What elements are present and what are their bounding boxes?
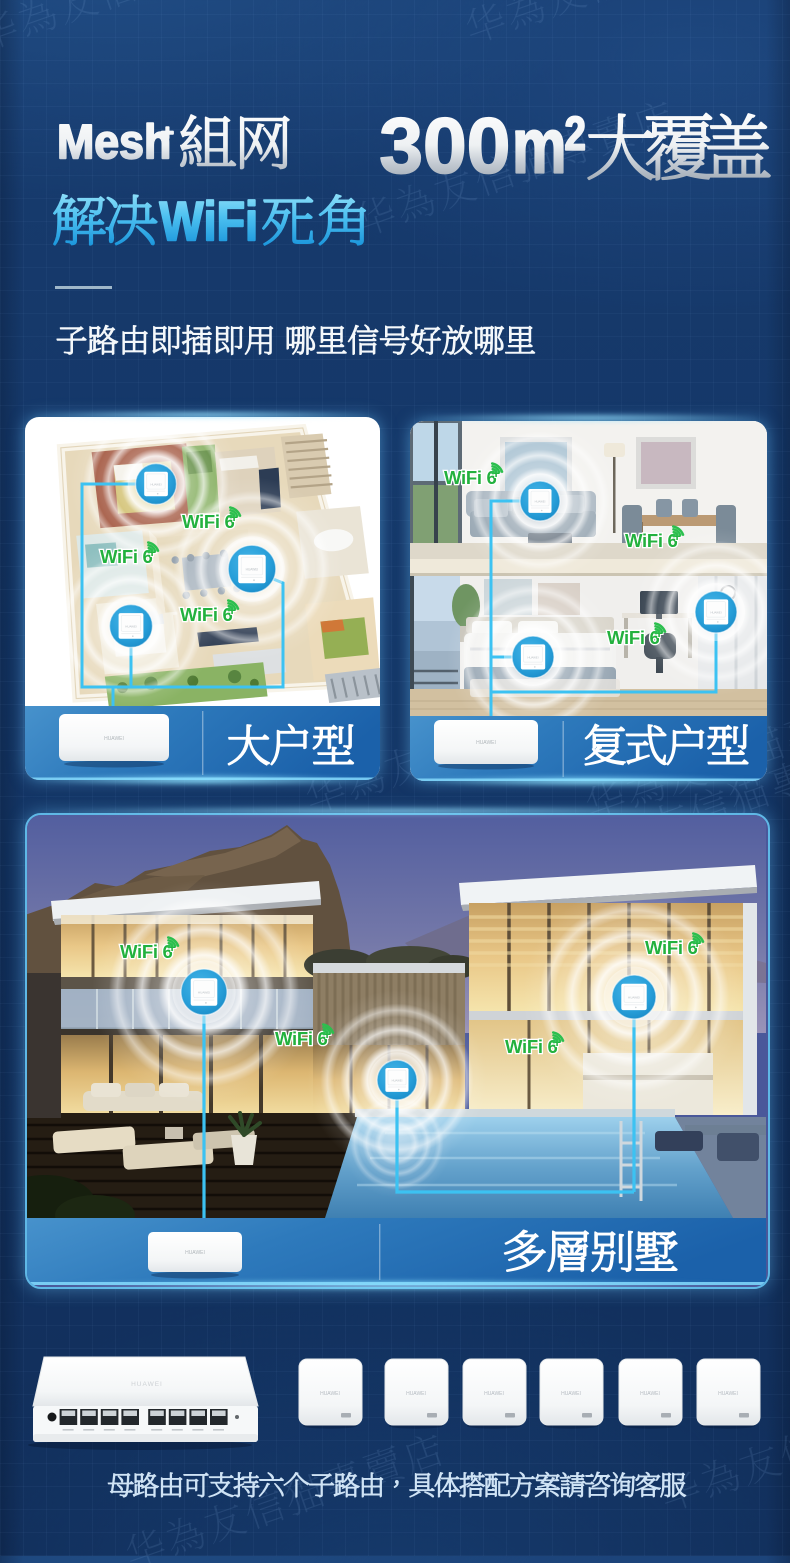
svg-text:WiFi 6: WiFi 6 bbox=[505, 1036, 558, 1057]
svg-text:HUAWEI: HUAWEI bbox=[406, 1391, 426, 1397]
svg-text:HUAWEI: HUAWEI bbox=[484, 1391, 504, 1397]
svg-text:WiFi 6: WiFi 6 bbox=[100, 546, 153, 567]
svg-text:WiFi 6: WiFi 6 bbox=[120, 941, 173, 962]
svg-text:WiFi 6: WiFi 6 bbox=[444, 467, 497, 488]
svg-text:WiFi 6: WiFi 6 bbox=[625, 530, 678, 551]
svg-text:HUAWEI: HUAWEI bbox=[185, 1250, 205, 1256]
svg-text:HUAWEI: HUAWEI bbox=[246, 568, 259, 572]
svg-text:WiFi 6: WiFi 6 bbox=[275, 1028, 328, 1049]
svg-text:HUAWEI: HUAWEI bbox=[198, 990, 210, 994]
svg-text:WiFi 6: WiFi 6 bbox=[182, 511, 235, 532]
svg-text:HUAWEI: HUAWEI bbox=[710, 610, 721, 614]
svg-text:HUAWEI: HUAWEI bbox=[628, 995, 640, 999]
svg-text:HUAWEI: HUAWEI bbox=[561, 1391, 581, 1397]
svg-text:HUAWEI: HUAWEI bbox=[718, 1391, 738, 1397]
svg-text:HUAWEI: HUAWEI bbox=[392, 1078, 403, 1082]
svg-text:WiFi 6: WiFi 6 bbox=[180, 604, 233, 625]
svg-text:WiFi 6: WiFi 6 bbox=[607, 627, 660, 648]
svg-text:WiFi 6: WiFi 6 bbox=[645, 937, 698, 958]
svg-text:HUAWEI: HUAWEI bbox=[150, 482, 161, 486]
svg-text:HUAWEI: HUAWEI bbox=[640, 1391, 660, 1397]
svg-text:HUAWEI: HUAWEI bbox=[476, 740, 496, 746]
svg-text:HUAWEI: HUAWEI bbox=[131, 1381, 163, 1388]
svg-text:HUAWEI: HUAWEI bbox=[125, 624, 137, 628]
svg-text:HUAWEI: HUAWEI bbox=[320, 1391, 340, 1397]
svg-text:HUAWEI: HUAWEI bbox=[104, 736, 124, 742]
svg-text:HUAWEI: HUAWEI bbox=[527, 655, 538, 659]
svg-text:HUAWEI: HUAWEI bbox=[535, 499, 546, 503]
